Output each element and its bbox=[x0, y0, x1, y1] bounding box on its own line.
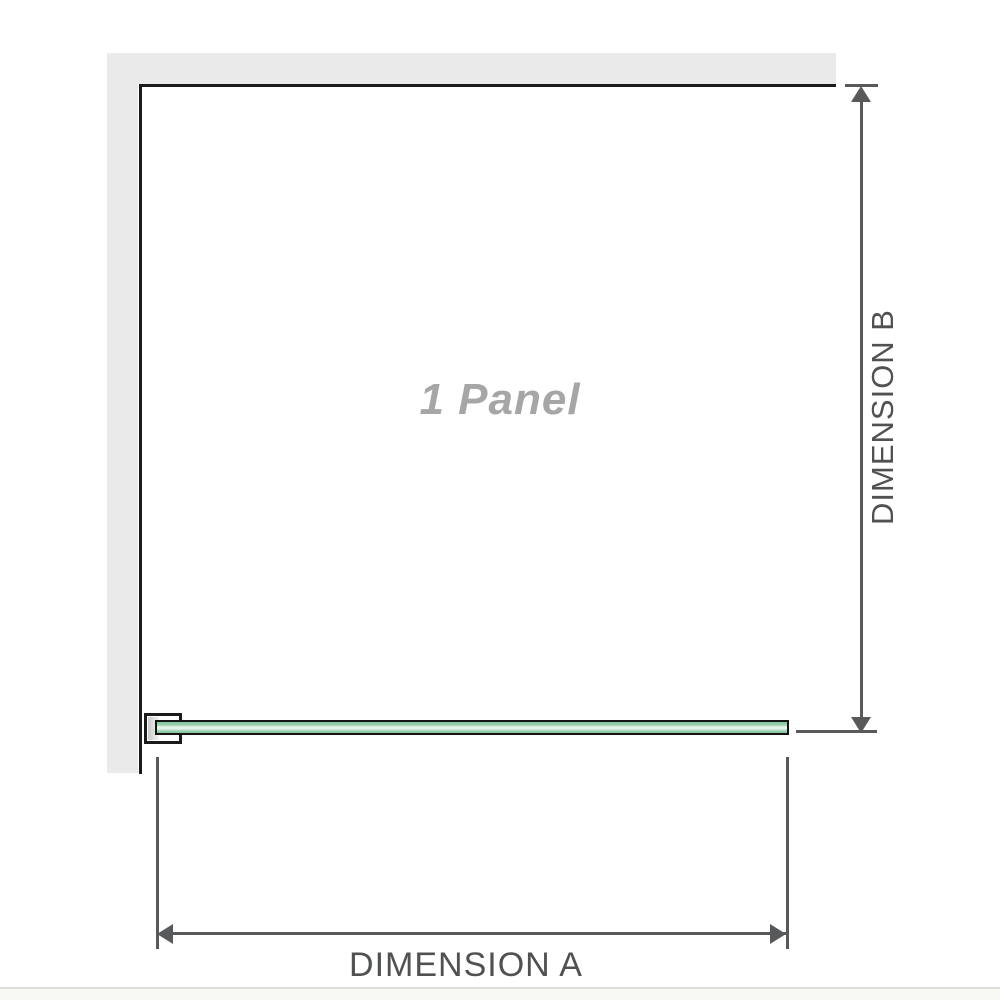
wall-segment-top bbox=[107, 53, 836, 84]
footer-strip bbox=[0, 989, 1000, 1000]
dimension-a-left-extension-line bbox=[156, 757, 159, 949]
arrow-left-icon bbox=[157, 924, 173, 944]
panel-count-label: 1 Panel bbox=[350, 375, 650, 425]
glass-panel bbox=[155, 720, 789, 735]
wall-edge-top-line bbox=[139, 84, 836, 87]
dimension-b-label: DIMENSION B bbox=[865, 292, 901, 542]
dimension-a-label: DIMENSION A bbox=[266, 946, 666, 985]
arrow-down-icon bbox=[851, 717, 871, 733]
dimension-a-right-extension-line bbox=[786, 757, 789, 949]
arrow-up-icon bbox=[851, 86, 871, 102]
diagram-canvas: 1 Panel DIMENSION B DIMENSION A bbox=[0, 0, 1000, 1000]
dimension-a-line bbox=[160, 932, 786, 935]
wall-segment-left bbox=[107, 53, 138, 773]
arrow-right-icon bbox=[770, 924, 786, 944]
dimension-b-line bbox=[860, 89, 863, 732]
wall-edge-left-line bbox=[139, 84, 142, 774]
